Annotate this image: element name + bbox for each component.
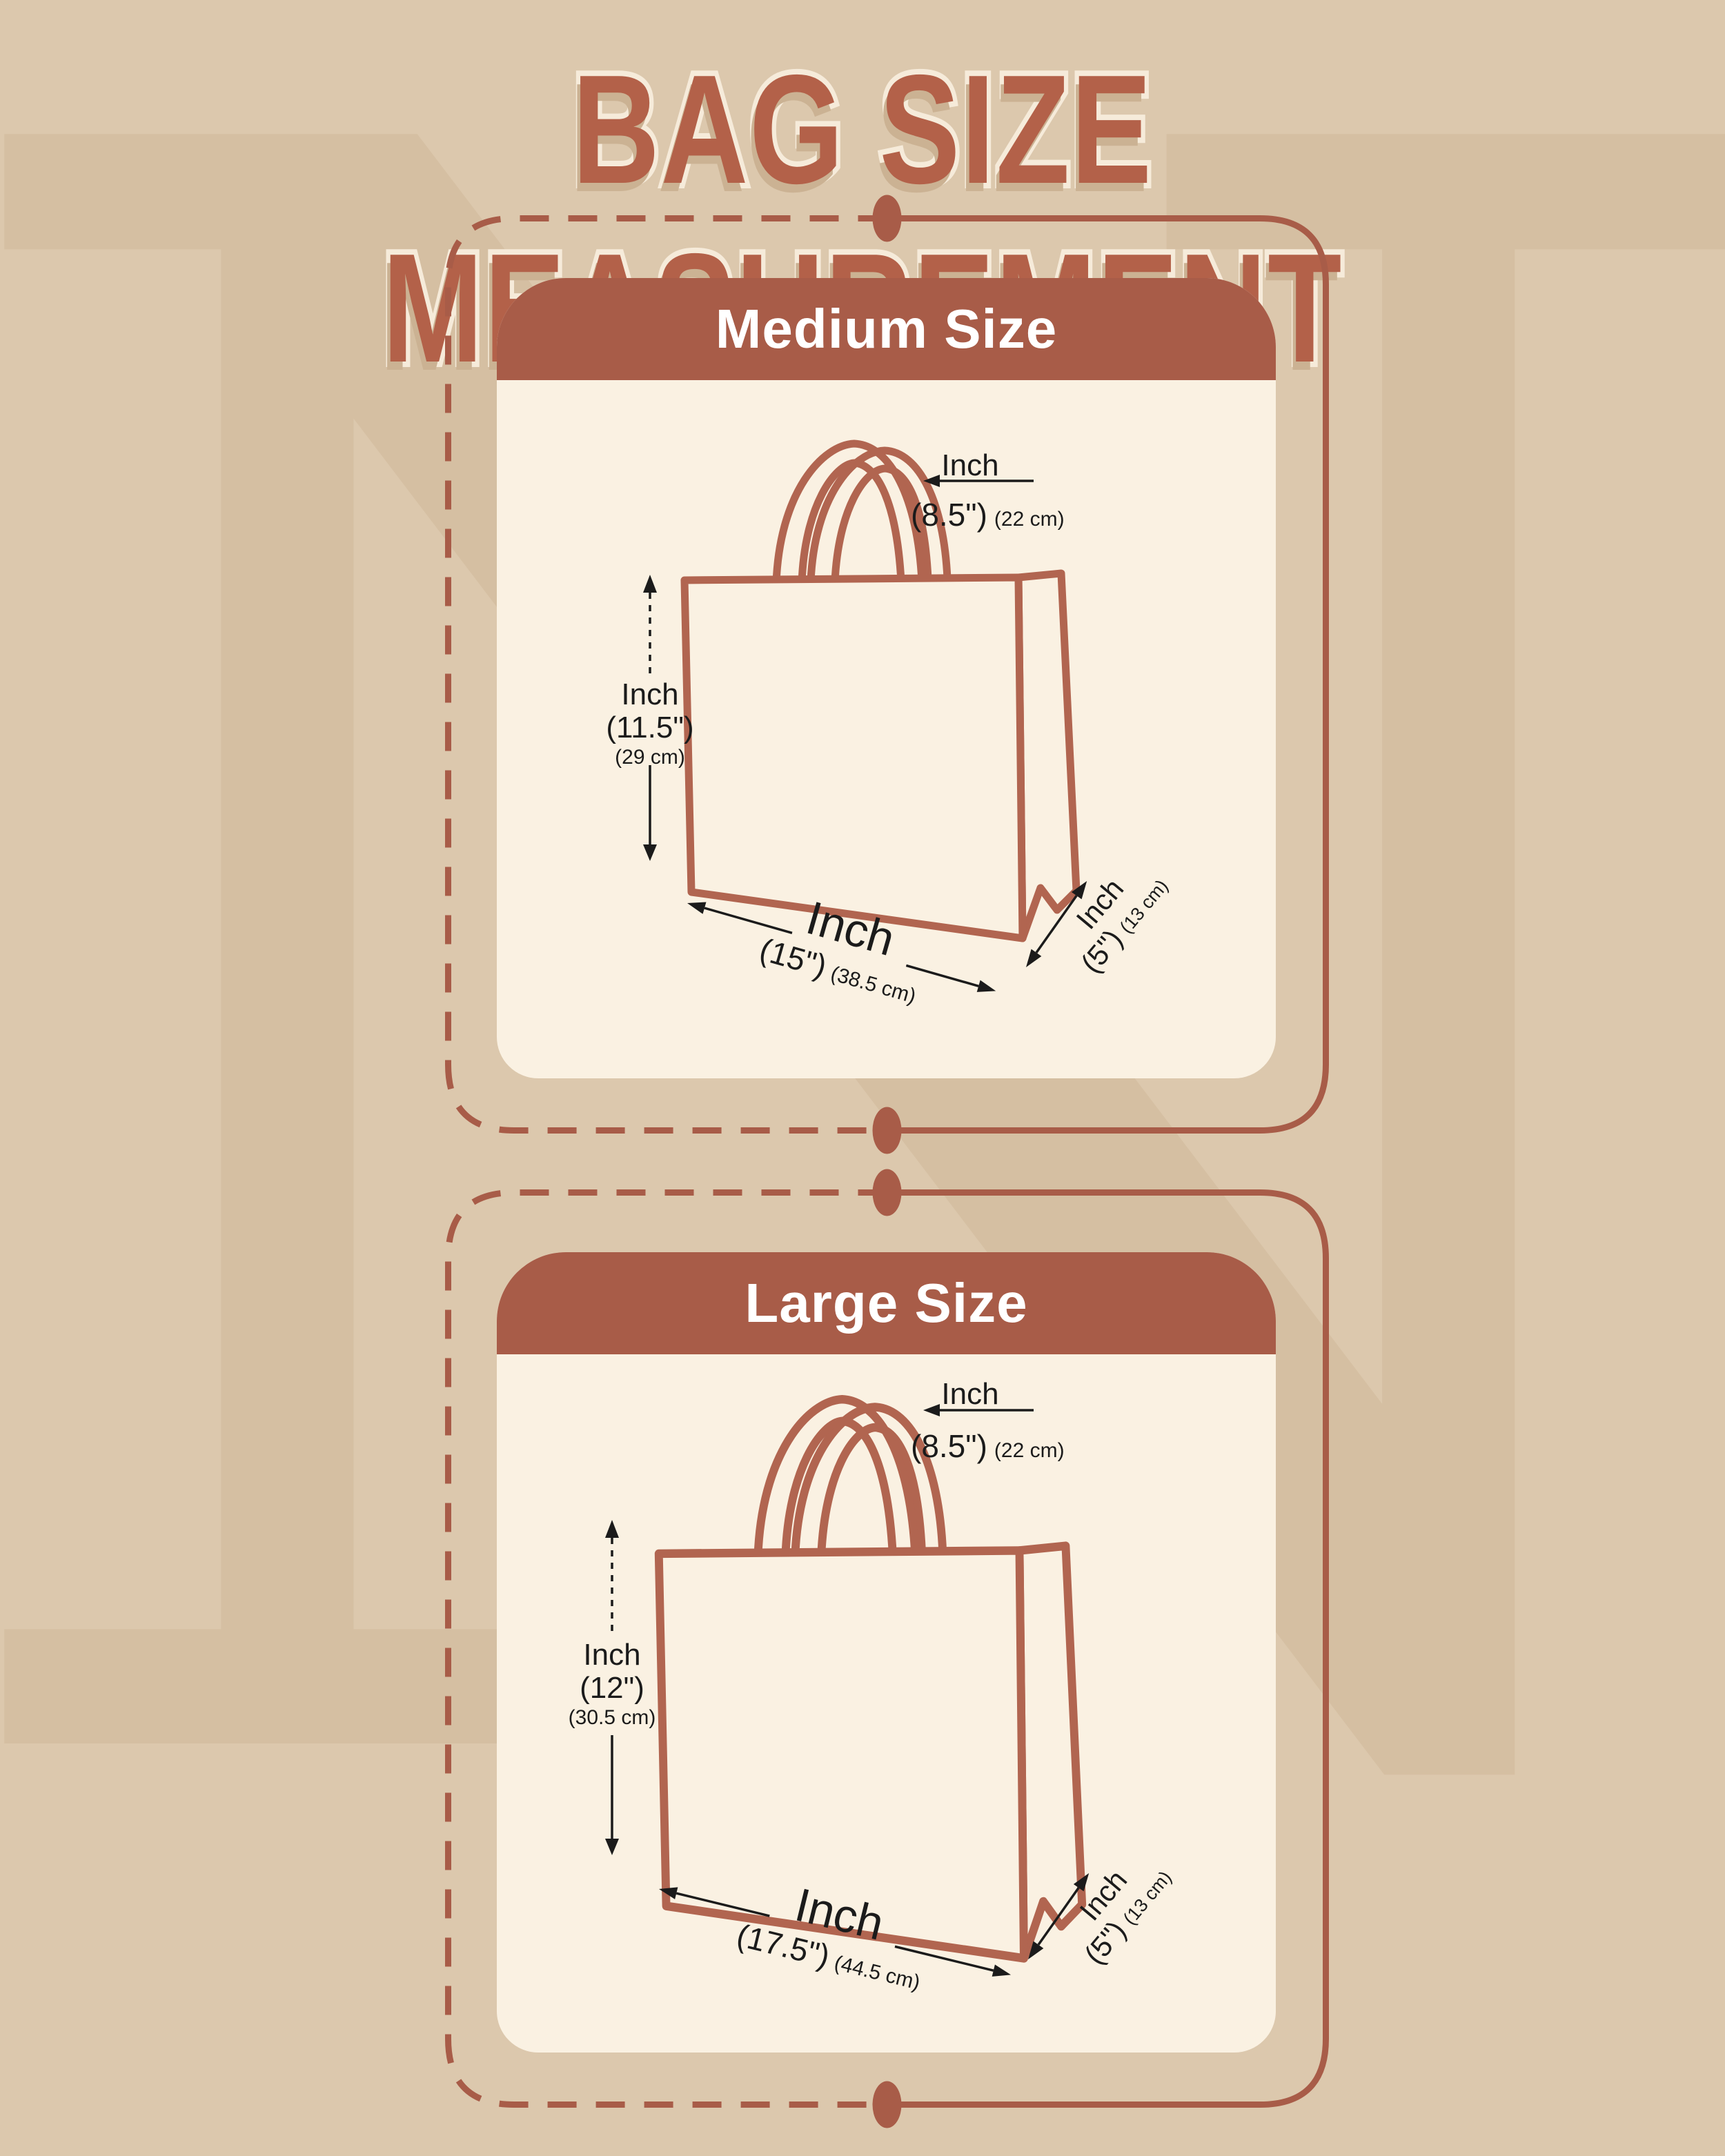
- height-measure-label: Inch (11.5") (29 cm): [560, 678, 740, 769]
- connector-dot-bottom: [873, 1107, 902, 1154]
- handle-measure-label: Inch: [908, 448, 1032, 483]
- height-measure-label: Inch (12") (30.5 cm): [522, 1639, 702, 1729]
- handle-measure-label: Inch: [908, 1377, 1032, 1412]
- panel-card-medium: Medium Size: [497, 278, 1276, 1078]
- connector-dot-top: [873, 195, 902, 242]
- panel-card-large: Large Size: [497, 1252, 1276, 2053]
- bag-size-infographic: N BAG SIZE MEASUREMENT Medium Size: [0, 0, 1725, 2156]
- connector-dot-bottom: [873, 2081, 902, 2128]
- bag-side-panel: [1018, 573, 1076, 938]
- connector-dot-top: [873, 1169, 902, 1216]
- medium-size-panel: Medium Size: [445, 215, 1329, 1134]
- large-size-panel: Large Size: [445, 1189, 1329, 2108]
- handle-measure-value: (8.5")(22 cm): [911, 1427, 1065, 1465]
- handle-measure-value: (8.5")(22 cm): [911, 496, 1065, 533]
